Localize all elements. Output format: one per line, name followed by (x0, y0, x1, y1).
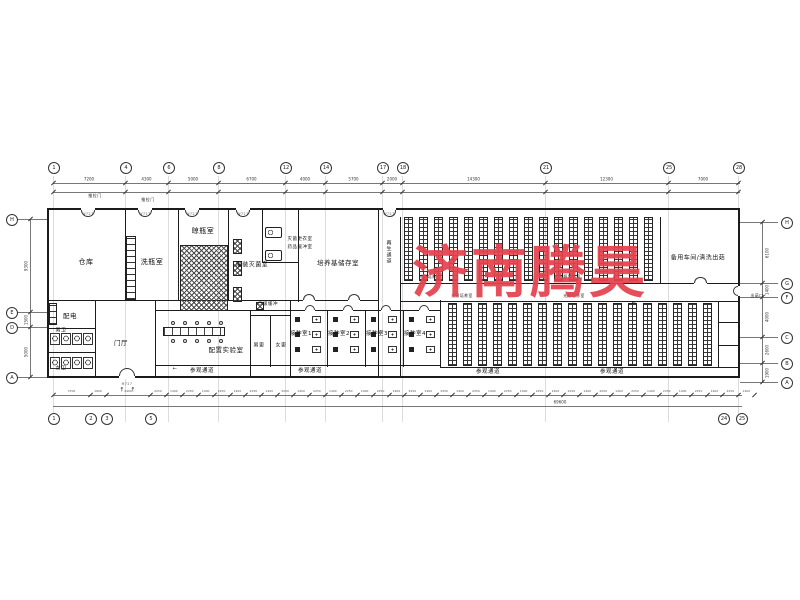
cultivation-rack (613, 303, 622, 366)
grid-bubble: A (781, 377, 793, 389)
grid-bubble: 28 (733, 162, 745, 174)
dim-value: 2250 (409, 389, 417, 393)
circ-symbol (195, 321, 199, 325)
grid-bubble: E (6, 307, 18, 319)
room-label: ← (173, 366, 178, 372)
room-label: 男卫 (55, 327, 66, 334)
dim-value: 2250 (218, 389, 226, 393)
cultivation-rack (703, 303, 712, 366)
wall (378, 210, 379, 378)
dim-value: 1400 (456, 389, 464, 393)
dim-value: 7200 (84, 177, 94, 182)
room-label: 参观通道 (476, 367, 500, 375)
room-label: 配电 (63, 310, 77, 320)
circ-symbol (219, 339, 223, 343)
dim-value: 5000 (24, 347, 29, 357)
dim-value: 2250 (536, 389, 544, 393)
ladder-symbol (126, 236, 136, 300)
cultivation-rack (583, 303, 592, 366)
room-label: 男更 (253, 342, 264, 349)
cultivation-rack (448, 303, 457, 366)
stall-symbol (50, 333, 60, 345)
circ-symbol (219, 321, 223, 325)
dim-value: 2000 (387, 177, 397, 182)
dim-value: 4000 (300, 177, 310, 182)
cultivation-rack (643, 303, 652, 366)
hood-symbol (350, 346, 359, 353)
stall-symbol (72, 333, 82, 345)
stall-symbol (61, 333, 71, 345)
wall (327, 310, 328, 367)
dim-value: 2250 (663, 389, 671, 393)
hood-symbol (312, 331, 321, 338)
sq-symbol (333, 347, 338, 352)
wall (718, 345, 738, 346)
grid-bubble: 25 (736, 413, 748, 425)
grid-bubble: 24 (718, 413, 730, 425)
grid-line (53, 176, 54, 422)
grid-bubble: A (6, 372, 18, 384)
door-leaf (127, 368, 135, 376)
hood-symbol (426, 346, 435, 353)
room-label: 培养基储存室 (317, 257, 359, 267)
dim-value: 1400 (679, 389, 687, 393)
room-label: W727 (237, 212, 248, 216)
dim-value: 5000 (188, 177, 198, 182)
room-label: W727 (383, 212, 394, 216)
cultivation-rack (538, 303, 547, 366)
wall (440, 300, 441, 367)
grid-line (402, 176, 403, 422)
dim-value: 4000 (765, 312, 770, 322)
door-leaf (733, 291, 738, 296)
room-label: 灭菌更衣室 (288, 236, 313, 242)
dim-value: 5700 (348, 177, 358, 182)
dim-value: 1400 (234, 389, 242, 393)
dimension-line (53, 192, 740, 193)
room-label: 出菇口 (751, 293, 764, 299)
room-label: 二级缓冲 (258, 301, 278, 307)
dim-value: 1400 (265, 389, 273, 393)
grid-bubble: C (781, 332, 793, 344)
room-label: 晾瓶室 (192, 226, 215, 236)
door-leaf (386, 305, 391, 310)
circ-symbol (195, 339, 199, 343)
grid-bubble: 25 (663, 162, 675, 174)
room-label: W727 (186, 212, 197, 216)
dim-value: 1400 (297, 389, 305, 393)
room-label: 推拉门 (141, 197, 155, 203)
xhatch-symbol (180, 245, 228, 311)
cultivation-rack (493, 303, 502, 366)
xhatch-symbol (233, 287, 242, 302)
wall (155, 300, 156, 378)
sq-symbol (371, 347, 376, 352)
door-leaf (310, 305, 315, 310)
door-leaf (694, 277, 701, 284)
grid-bubble: B (781, 358, 793, 370)
dim-value: 2250 (154, 389, 162, 393)
dim-value: 1500 (24, 314, 29, 324)
cultivation-rack (673, 303, 682, 366)
dim-value: 1400 (361, 389, 369, 393)
grid-bubble: 18 (397, 162, 409, 174)
wall (400, 217, 401, 378)
door-leaf (354, 294, 360, 300)
wall (270, 315, 271, 367)
door-leaf (309, 294, 315, 300)
dimension-line (16, 312, 47, 313)
room-label: 仓库 (79, 257, 94, 267)
room-label: 参观通道 (298, 366, 322, 374)
door-leaf (119, 368, 127, 376)
grid-bubble: 1 (48, 413, 60, 425)
hood-symbol (350, 316, 359, 323)
dim-value: 4300 (141, 177, 151, 182)
cultivation-rack (598, 303, 607, 366)
machine-symbol (265, 227, 282, 238)
circ-symbol (171, 321, 175, 325)
dim-value: 6700 (246, 177, 256, 182)
room-label: 女更 (275, 342, 286, 349)
circ-symbol (171, 339, 175, 343)
dim-value: 6100 (765, 247, 770, 257)
cultivation-rack (523, 303, 532, 366)
wall (228, 210, 229, 300)
stall-symbol (83, 333, 93, 345)
dim-value: 3700 (68, 389, 76, 393)
room-label: 接种室1 (290, 329, 312, 337)
dim-value: 1400 (202, 389, 210, 393)
door-leaf (701, 277, 708, 284)
wall (403, 310, 404, 367)
grid-bubble: G (781, 278, 793, 290)
dimension-line (53, 406, 742, 407)
hood-symbol (388, 331, 397, 338)
grid-bubble: 3 (101, 413, 113, 425)
xhatch-symbol (233, 239, 242, 254)
room-label: 女卫 (55, 365, 66, 372)
dim-value: 1600 (94, 389, 102, 393)
dim-value: 2250 (345, 389, 353, 393)
room-label: 参观通道 (190, 366, 214, 374)
dimension-line (16, 327, 47, 328)
dim-value: 12300 (600, 177, 613, 182)
dim-value: 2250 (377, 389, 385, 393)
wall (47, 352, 95, 353)
wall (250, 310, 251, 378)
dimension-line (762, 222, 763, 382)
dim-value: 1400 (711, 389, 719, 393)
wall (95, 300, 96, 378)
grid-bubble: H (781, 217, 793, 229)
dim-value: 2250 (313, 389, 321, 393)
floor-plan-canvas: 14681214171821252812352425HEDAHGFCBA7200… (0, 0, 800, 600)
room-label: ↑ (130, 387, 136, 394)
dim-value: 1400 (393, 389, 401, 393)
wall (250, 315, 290, 316)
grid-line (285, 176, 286, 422)
dimension-line (53, 395, 742, 396)
circ-symbol (207, 339, 211, 343)
grid-bubble: 2 (85, 413, 97, 425)
room-label: 接种室2 (328, 329, 350, 337)
dim-value: 1400 (647, 389, 655, 393)
room-label: ↑ (119, 387, 125, 394)
room-label: W727 (139, 212, 150, 216)
grid-bubble: 1 (48, 162, 60, 174)
sq-symbol (295, 347, 300, 352)
hood-symbol (388, 316, 397, 323)
watermark-text: 济南腾昊 (412, 243, 672, 305)
dim-value: 2250 (281, 389, 289, 393)
dim-value: 1400 (552, 389, 560, 393)
room-label: 接种室3 (366, 329, 388, 337)
stall-symbol (72, 357, 82, 369)
dim-value: 1400 (615, 389, 623, 393)
dim-value: 2250 (504, 389, 512, 393)
wall (290, 300, 291, 378)
grid-bubble: 6 (163, 162, 175, 174)
grid-line (168, 176, 169, 422)
dim-value: 2250 (568, 389, 576, 393)
hood-symbol (312, 346, 321, 353)
grid-bubble: 12 (280, 162, 292, 174)
bench-symbol (163, 327, 225, 336)
sq-symbol (333, 317, 338, 322)
sq-symbol (295, 317, 300, 322)
wall (718, 302, 719, 367)
cultivation-rack (658, 303, 667, 366)
grid-bubble: 5 (145, 413, 157, 425)
dim-value: 1400 (170, 389, 178, 393)
grid-bubble: D (6, 322, 18, 334)
dim-value: 2600 (765, 345, 770, 355)
grid-bubble: H (6, 214, 18, 226)
cultivation-rack (478, 303, 487, 366)
dimension-line (53, 183, 740, 184)
wall (298, 210, 299, 302)
circ-symbol (183, 339, 187, 343)
ladder-symbol (49, 303, 57, 325)
stall-symbol (83, 357, 93, 369)
wall (365, 310, 366, 367)
dim-value: 1400 (488, 389, 496, 393)
dimension-line (30, 219, 31, 377)
cultivation-rack (553, 303, 562, 366)
circ-symbol (183, 321, 187, 325)
dim-value: 7000 (698, 177, 708, 182)
cultivation-rack (628, 303, 637, 366)
dim-overall: 69600 (554, 400, 567, 405)
door-leaf (348, 305, 353, 310)
room-label: 洗瓶室 (141, 257, 164, 267)
room-label: W727 (82, 212, 93, 216)
grid-bubble: F (781, 292, 793, 304)
hood-symbol (350, 331, 359, 338)
room-label: 接种室4 (404, 329, 426, 337)
room-label: 备用车间/清洗出菇 (671, 253, 726, 262)
grid-line (325, 176, 326, 422)
grid-bubble: 8 (213, 162, 225, 174)
dimension-line (16, 219, 47, 220)
dim-value: 1900 (765, 367, 770, 377)
room-label: 门厅 (114, 337, 128, 347)
cultivation-rack (508, 303, 517, 366)
hood-symbol (388, 346, 397, 353)
room-label: M727 (122, 382, 133, 386)
room-label: 参观通道 (600, 367, 624, 375)
wall (178, 210, 179, 300)
dim-value: 2250 (250, 389, 258, 393)
cultivation-rack (688, 303, 697, 366)
dim-value: 1400 (583, 389, 591, 393)
dim-value: 1400 (424, 389, 432, 393)
grid-bubble: 14 (320, 162, 332, 174)
dim-tick (752, 393, 757, 398)
room-label: 推拉门 (88, 193, 102, 199)
wall (718, 322, 738, 323)
wall (262, 210, 263, 262)
circ-symbol (207, 321, 211, 325)
hood-symbol (426, 316, 435, 323)
dim-value: 2250 (472, 389, 480, 393)
dim-value: 14300 (467, 177, 480, 182)
dim-value: 1400 (742, 389, 750, 393)
grid-bubble: 17 (377, 162, 389, 174)
dim-value: 1400 (520, 389, 528, 393)
hood-symbol (312, 316, 321, 323)
dim-value: 2250 (631, 389, 639, 393)
dim-value: 2250 (186, 389, 194, 393)
hood-symbol (426, 331, 435, 338)
dimension-line (16, 377, 47, 378)
dim-value: 1400 (765, 285, 770, 295)
dim-value: 2250 (695, 389, 703, 393)
floor-plan-drawing: 14681214171821252812352425HEDAHGFCBA7200… (0, 0, 800, 600)
dim-value: 2250 (727, 389, 735, 393)
room-label: 配置实验室 (209, 344, 244, 354)
grid-bubble: 4 (120, 162, 132, 174)
sq-symbol (371, 317, 376, 322)
sq-symbol (409, 317, 414, 322)
dim-value: 2250 (599, 389, 607, 393)
cultivation-rack (568, 303, 577, 366)
wall (47, 376, 740, 378)
dim-value: 9300 (24, 260, 29, 270)
wall (47, 328, 95, 329)
dim-value: 1400 (329, 389, 337, 393)
sq-symbol (409, 347, 414, 352)
room-label: 再生通道 (386, 240, 393, 264)
cultivation-rack (463, 303, 472, 366)
room-label: 灌装灭菌室 (236, 260, 269, 269)
room-label: 药品缓冲室 (288, 244, 313, 250)
grid-bubble: 21 (540, 162, 552, 174)
dim-value: 2250 (440, 389, 448, 393)
